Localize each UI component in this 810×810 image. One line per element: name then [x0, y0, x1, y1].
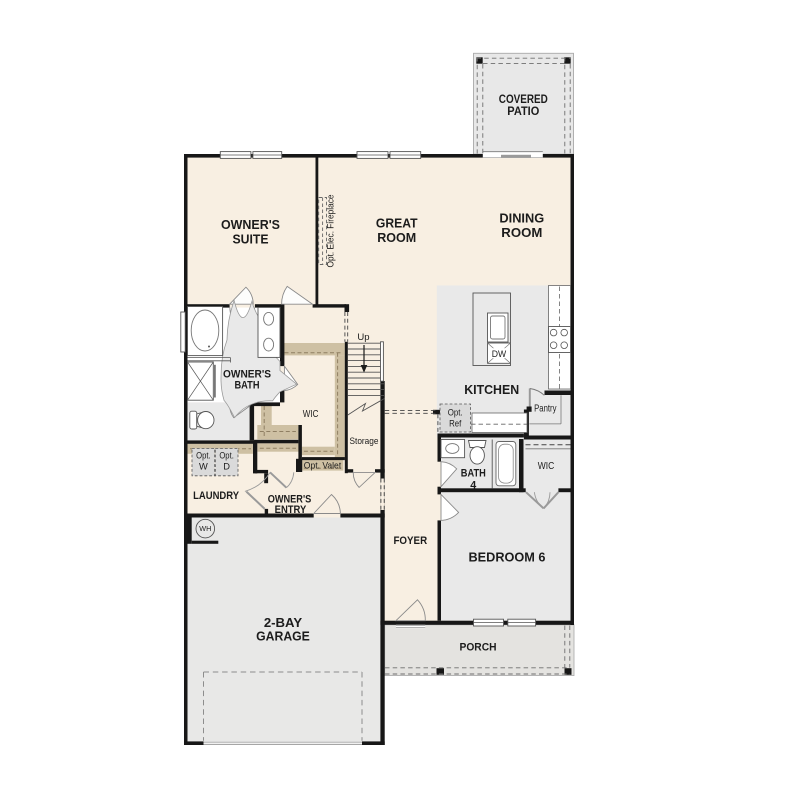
svg-text:WIC: WIC: [538, 461, 555, 472]
svg-text:PORCH: PORCH: [460, 642, 497, 654]
svg-text:ROOM: ROOM: [377, 230, 416, 245]
svg-text:DW: DW: [492, 349, 507, 359]
svg-text:WH: WH: [199, 524, 211, 533]
svg-text:W: W: [199, 462, 208, 472]
svg-text:BEDROOM 6: BEDROOM 6: [469, 549, 546, 564]
svg-text:Opt.: Opt.: [448, 408, 463, 418]
svg-text:GREAT: GREAT: [376, 215, 418, 230]
svg-text:Opt. Elec. Fireplace: Opt. Elec. Fireplace: [326, 194, 336, 267]
svg-text:Pantry: Pantry: [534, 404, 557, 415]
svg-text:4: 4: [470, 480, 476, 492]
svg-text:FOYER: FOYER: [393, 535, 427, 547]
svg-text:PATIO: PATIO: [507, 104, 539, 118]
svg-text:GARAGE: GARAGE: [256, 629, 310, 644]
svg-text:D: D: [223, 462, 230, 472]
svg-text:Opt. Valet: Opt. Valet: [304, 461, 342, 471]
svg-text:BATH: BATH: [235, 379, 260, 391]
svg-text:DINING: DINING: [499, 210, 544, 225]
svg-text:ENTRY: ENTRY: [275, 504, 307, 516]
svg-text:Opt.: Opt.: [196, 451, 211, 461]
svg-text:SUITE: SUITE: [233, 232, 269, 247]
svg-text:Up: Up: [357, 332, 369, 343]
svg-text:KITCHEN: KITCHEN: [464, 382, 519, 397]
svg-text:ROOM: ROOM: [501, 225, 542, 240]
svg-text:Storage: Storage: [350, 436, 379, 447]
svg-text:BATH: BATH: [461, 468, 486, 480]
svg-text:Ref: Ref: [449, 419, 462, 429]
svg-text:OWNER'S: OWNER'S: [221, 217, 280, 232]
svg-text:Opt.: Opt.: [219, 451, 234, 461]
svg-text:WIC: WIC: [303, 409, 319, 420]
svg-text:2-BAY: 2-BAY: [264, 615, 303, 630]
svg-text:LAUNDRY: LAUNDRY: [193, 490, 240, 502]
